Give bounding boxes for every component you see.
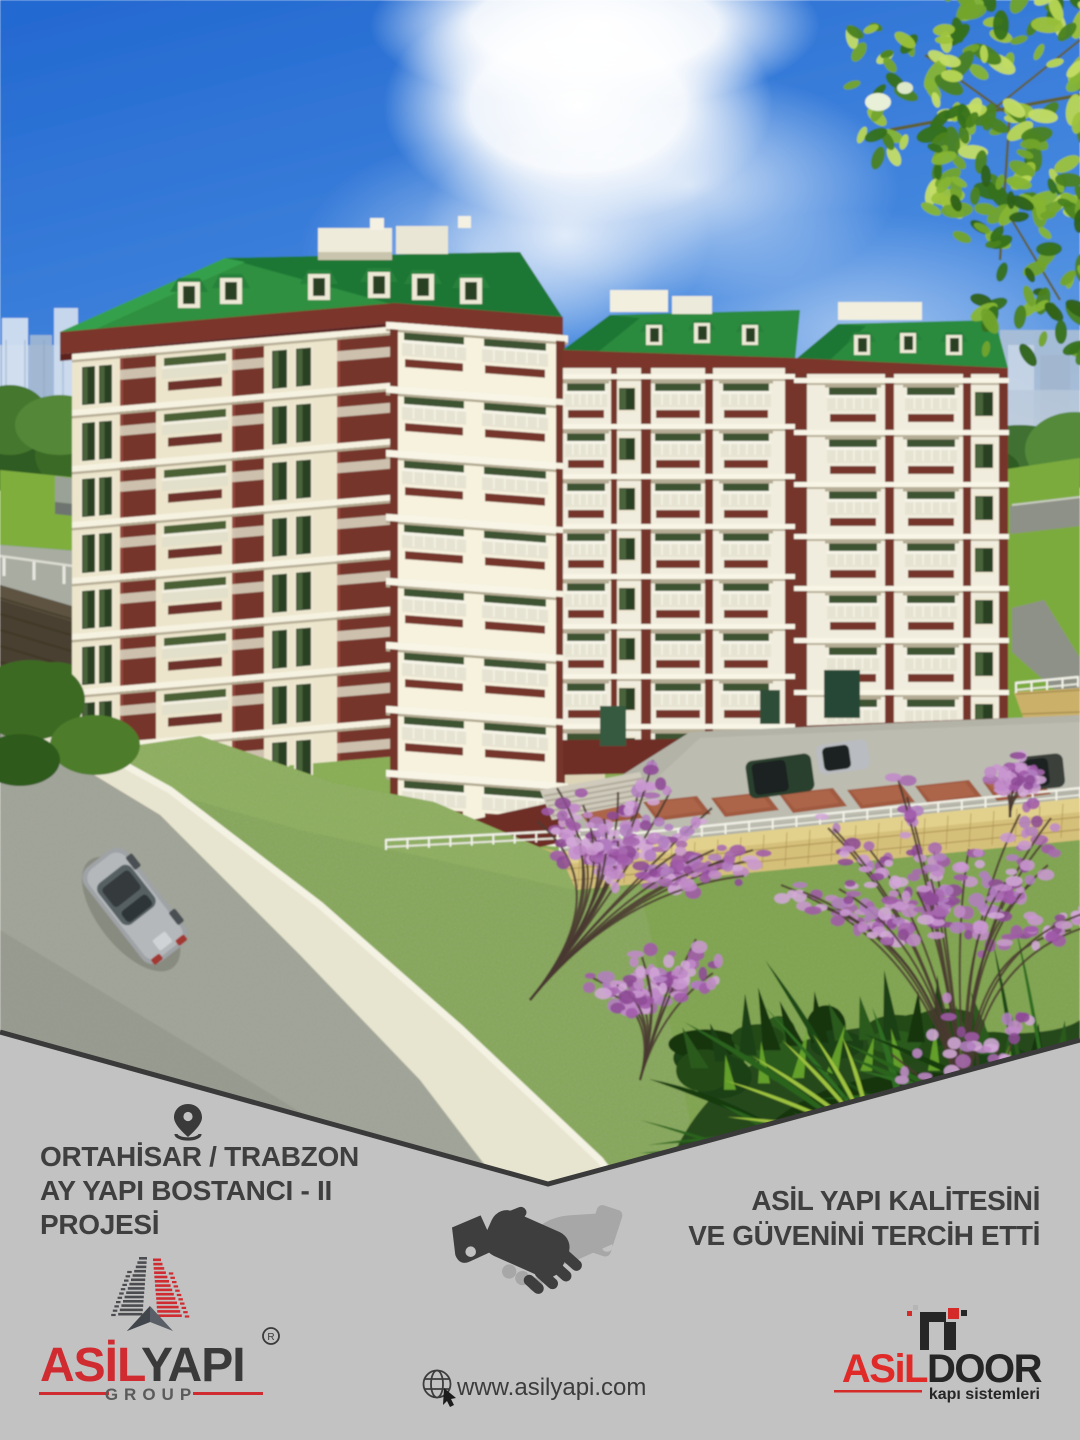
svg-text:ORTAHİSAR / TRABZON: ORTAHİSAR / TRABZON <box>40 1141 359 1172</box>
svg-text:ASiLDOOR: ASiLDOOR <box>842 1347 1043 1391</box>
svg-text:GROUP: GROUP <box>105 1385 197 1404</box>
svg-text:VE GÜVENİNİ TERCİH ETTİ: VE GÜVENİNİ TERCİH ETTİ <box>688 1220 1040 1251</box>
svg-text:AY YAPI BOSTANCI - II: AY YAPI BOSTANCI - II <box>40 1175 332 1206</box>
svg-text:www.asilyapi.com: www.asilyapi.com <box>456 1374 646 1401</box>
svg-text:ASİL YAPI KALİTESİNİ: ASİL YAPI KALİTESİNİ <box>751 1185 1040 1216</box>
svg-text:kapı sistemleri: kapı sistemleri <box>929 1386 1040 1403</box>
svg-text:PROJESİ: PROJESİ <box>40 1209 159 1240</box>
svg-text:R: R <box>267 1332 274 1343</box>
